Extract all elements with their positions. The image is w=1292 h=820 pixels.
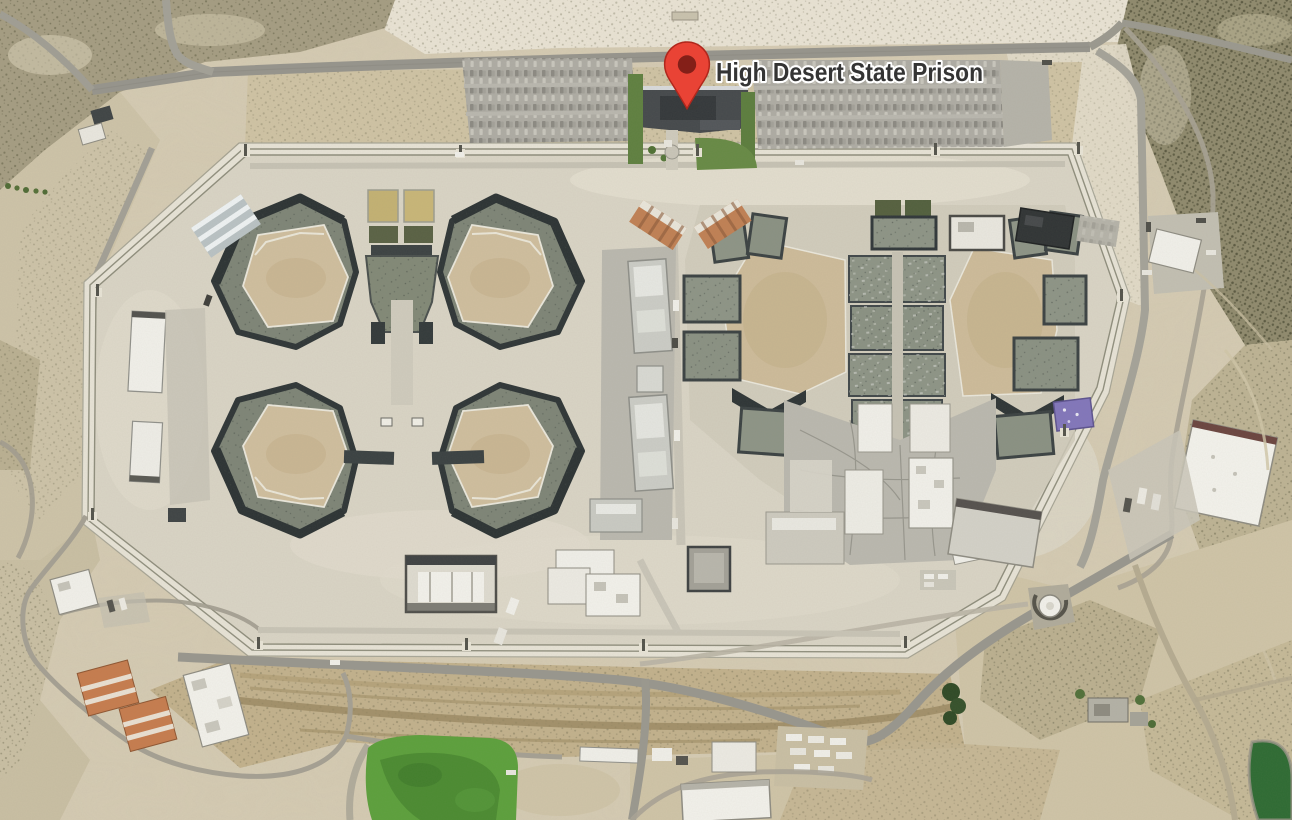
svg-text:High Desert State Prison: High Desert State Prison	[716, 57, 983, 87]
